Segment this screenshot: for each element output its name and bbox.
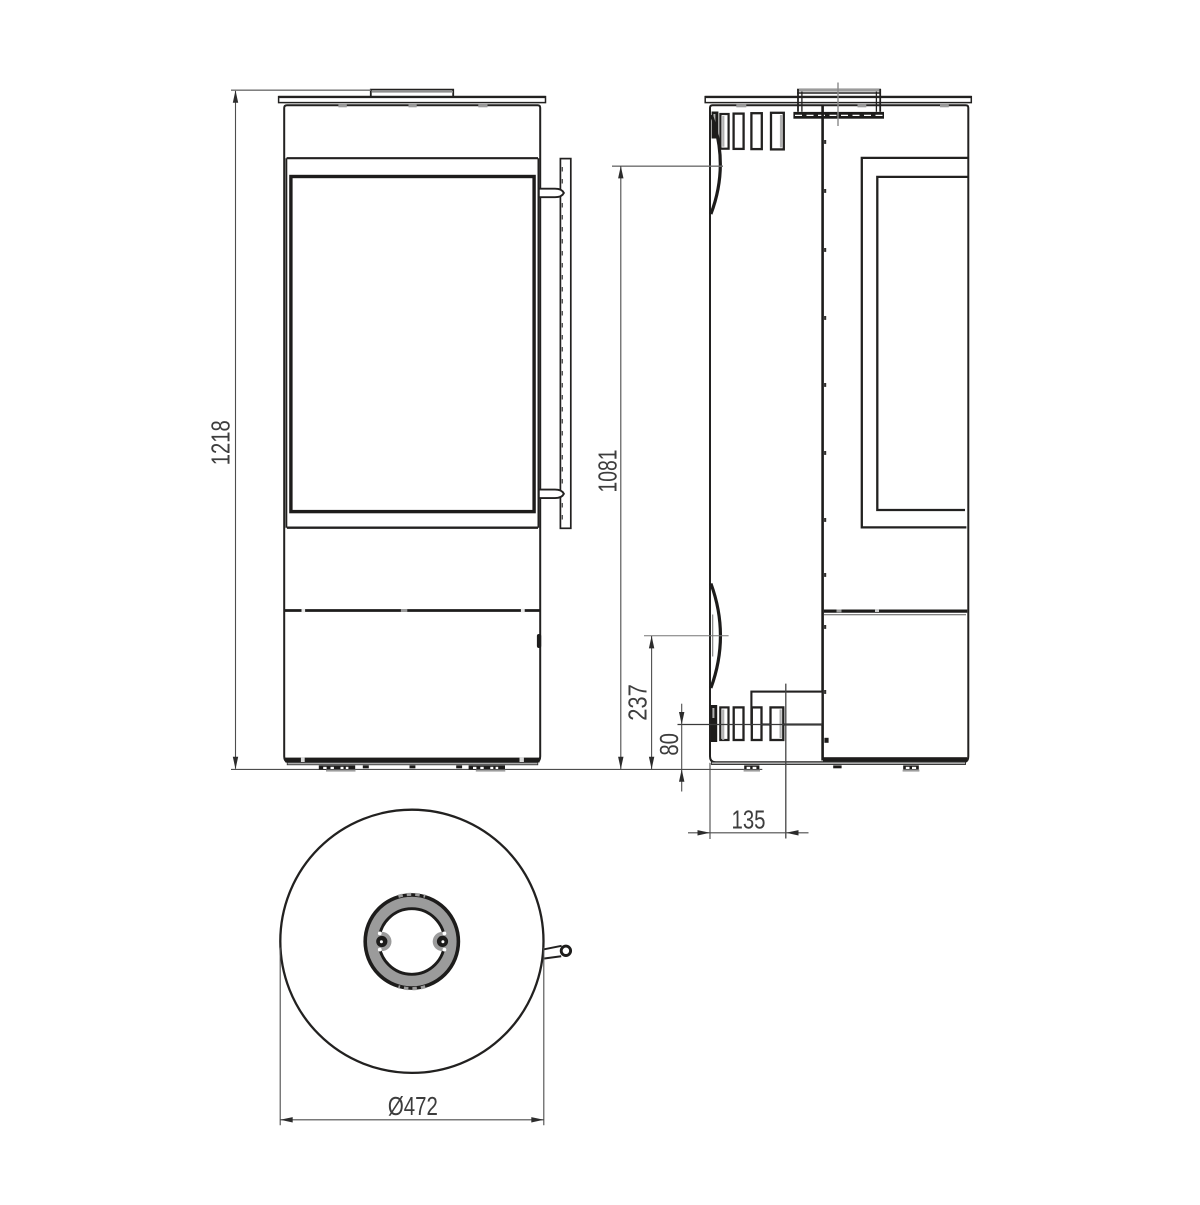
- svg-text:Ø472: Ø472: [388, 1093, 438, 1121]
- svg-text:237: 237: [625, 684, 653, 721]
- svg-text:80: 80: [656, 733, 684, 756]
- svg-text:1081: 1081: [594, 450, 622, 493]
- svg-text:1218: 1218: [208, 420, 236, 465]
- svg-text:135: 135: [732, 806, 766, 834]
